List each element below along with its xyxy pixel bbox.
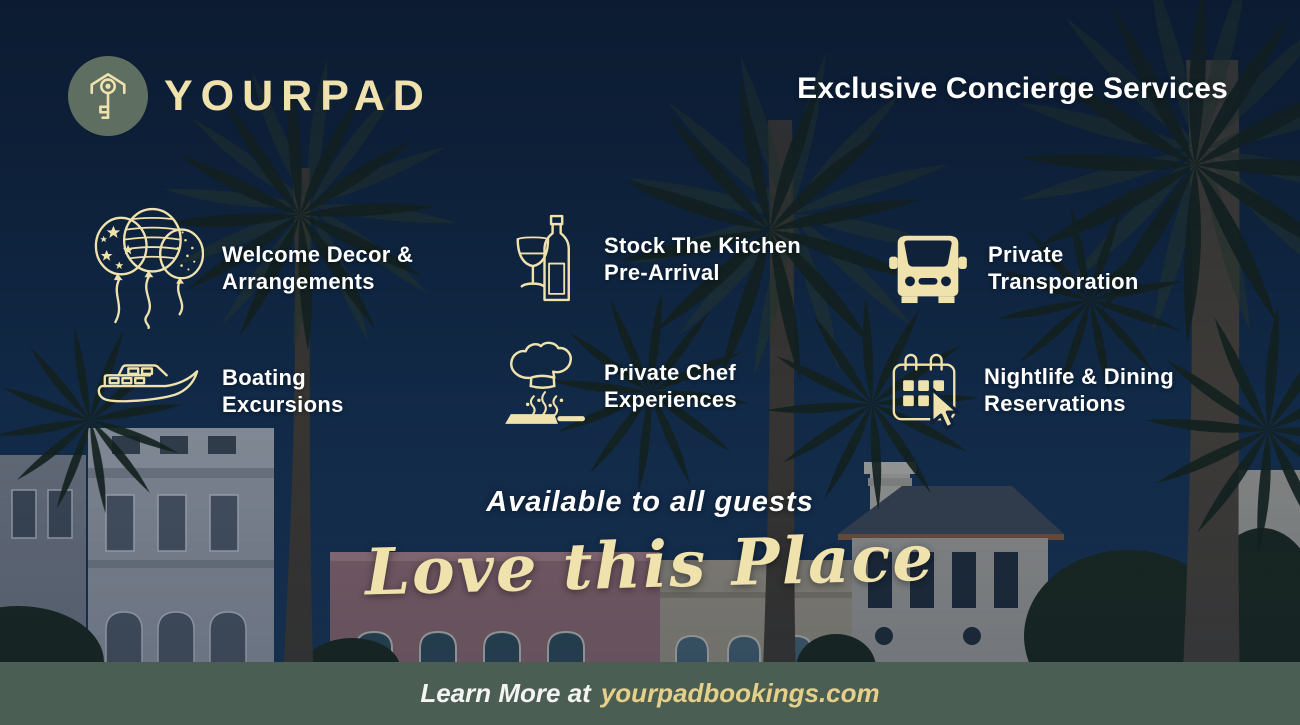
service-label: Stock The KitchenPre-Arrival (604, 232, 801, 286)
page-title: Exclusive Concierge Services (797, 72, 1228, 106)
wine-bottle-glass-icon (498, 211, 590, 307)
service-item-nightlife-dining: Nightlife & DiningReservations (882, 344, 1174, 436)
service-label: Welcome Decor &Arrangements (222, 241, 413, 295)
brand-name: YOURPAD (164, 72, 432, 121)
service-item-stock-kitchen: Stock The KitchenPre-Arrival (498, 208, 801, 310)
footer-bar: Learn More at yourpadbookings.com (0, 662, 1300, 725)
service-item-welcome-decor: Welcome Decor &Arrangements (88, 200, 413, 335)
footer-url: yourpadbookings.com (601, 678, 880, 709)
service-label: Private ChefExperiences (604, 359, 737, 413)
service-item-private-transportation: PrivateTransporation (882, 224, 1139, 312)
footer-text: Learn More at (420, 678, 591, 709)
concierge-flyer: YOURPAD Exclusive Concierge Services (0, 0, 1300, 725)
tagline: Available to all guests (0, 486, 1300, 519)
service-label: BoatingExcursions (222, 364, 344, 418)
brand-logo: YOURPAD (68, 56, 432, 136)
car-icon (882, 232, 974, 304)
key-icon (68, 56, 148, 136)
calendar-cursor-icon (882, 349, 970, 431)
balloons-icon (88, 206, 208, 330)
chef-hat-pan-icon (494, 341, 590, 431)
service-label: Nightlife & DiningReservations (984, 363, 1174, 417)
service-item-boating: BoatingExcursions (88, 348, 344, 434)
boat-icon (88, 360, 208, 422)
service-item-private-chef: Private ChefExperiences (494, 338, 737, 434)
service-label: PrivateTransporation (988, 241, 1139, 295)
